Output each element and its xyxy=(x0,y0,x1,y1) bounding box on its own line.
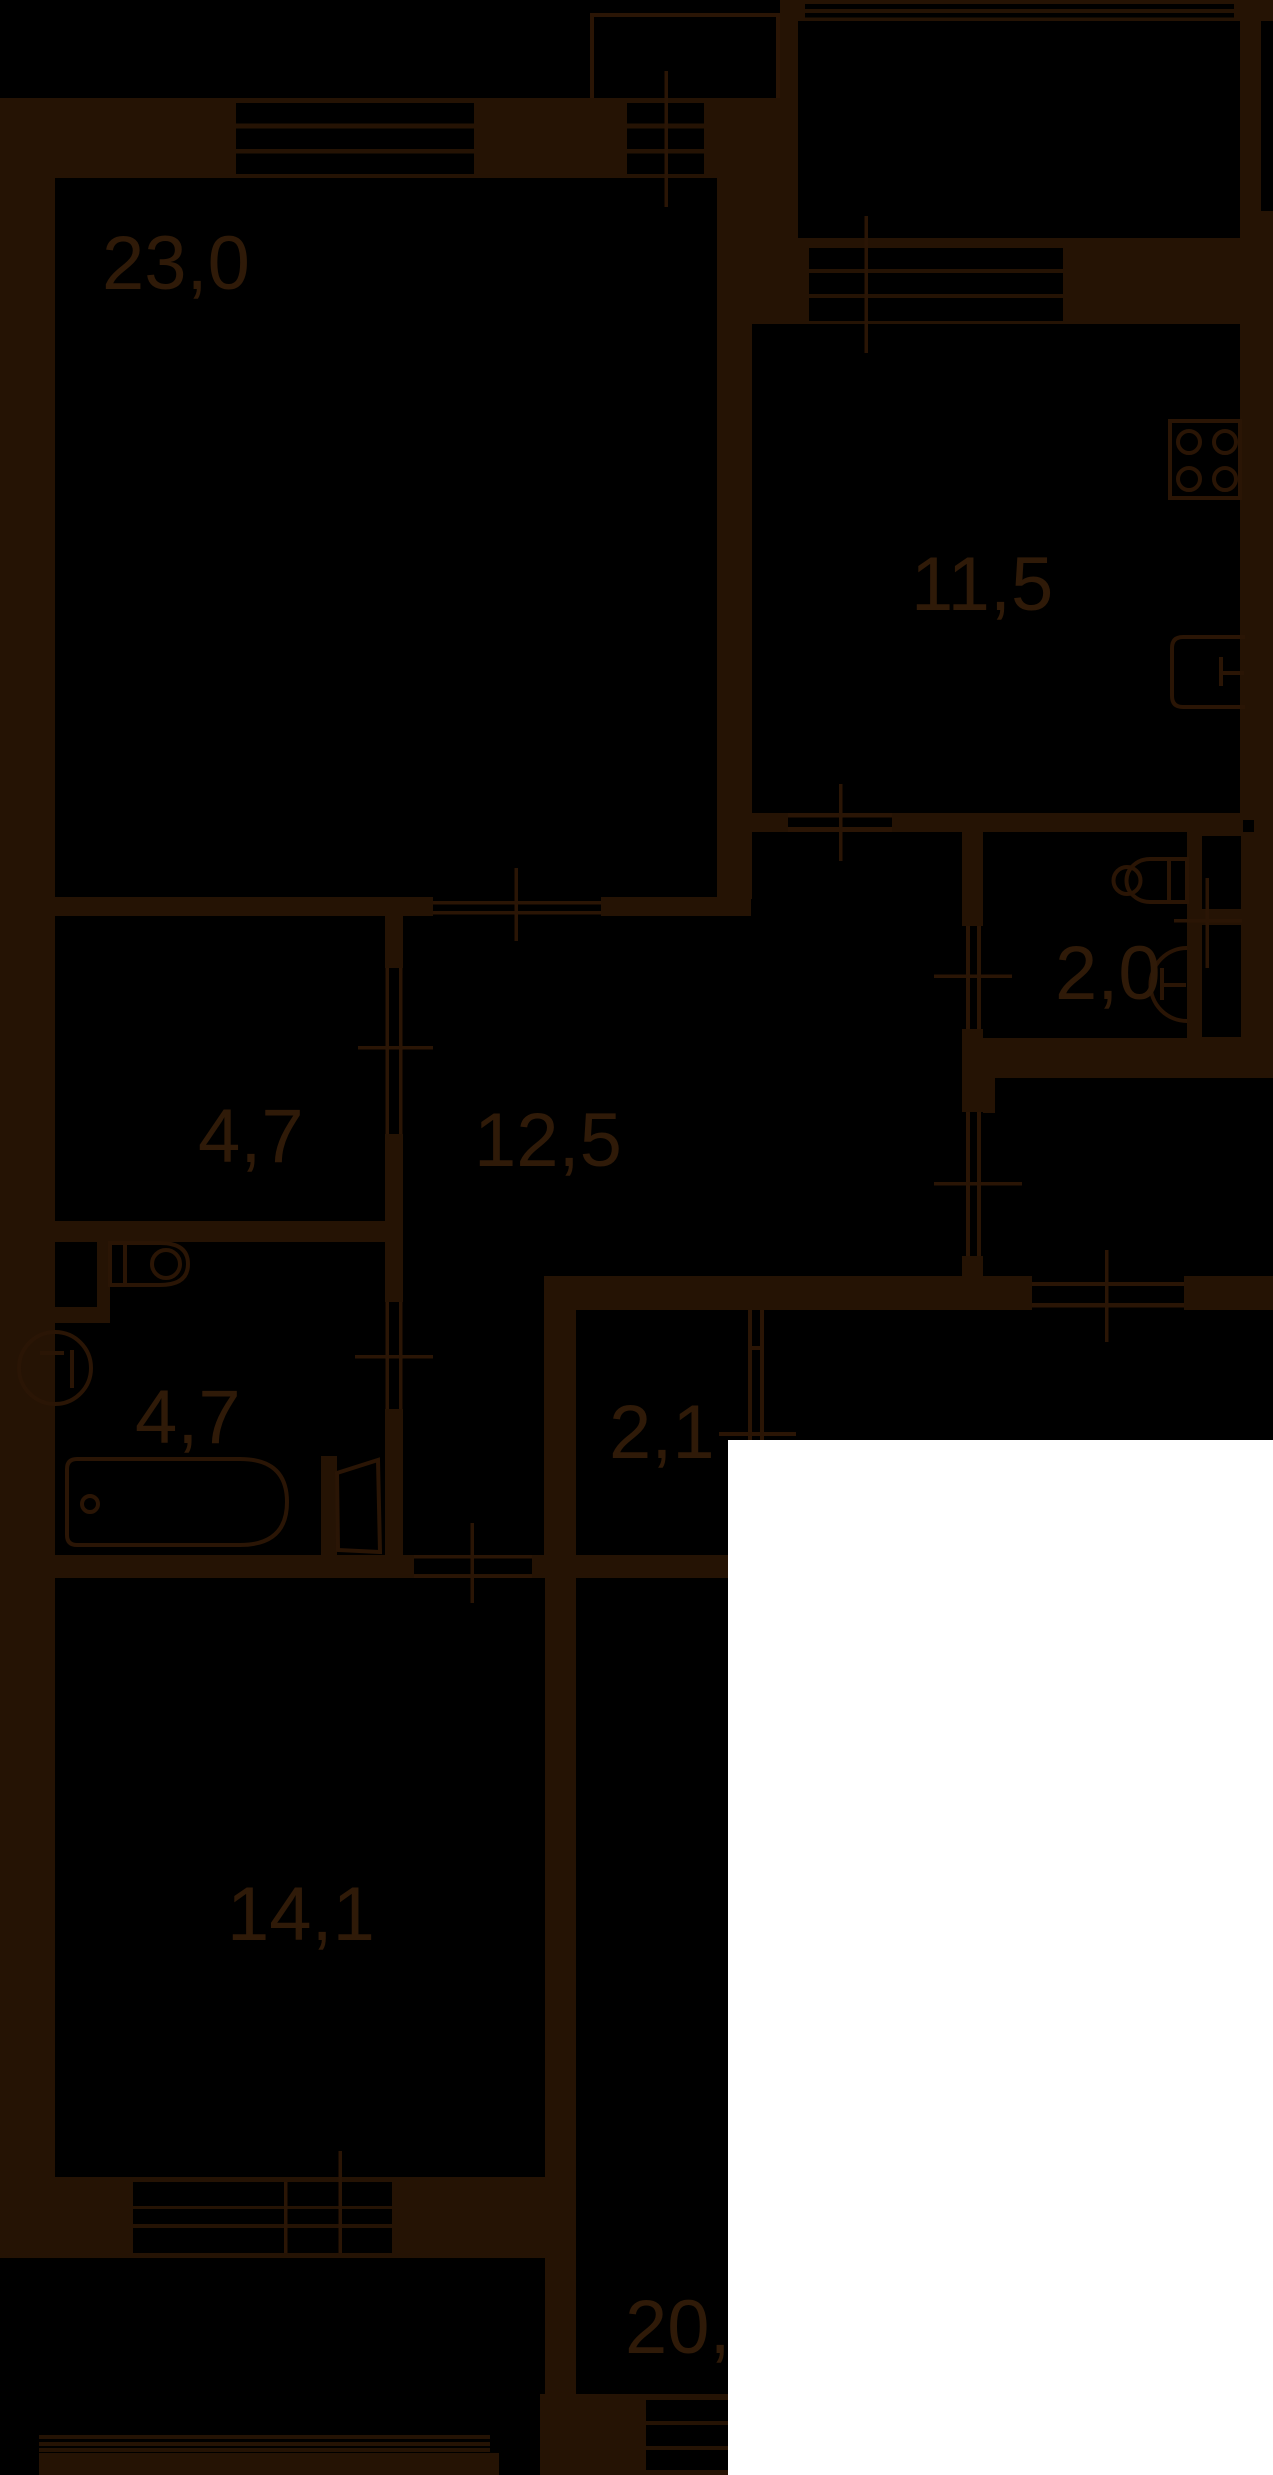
svg-text:4,7: 4,7 xyxy=(198,1094,304,1179)
svg-text:12,5: 12,5 xyxy=(474,1098,622,1183)
svg-text:2,0: 2,0 xyxy=(1055,931,1161,1016)
svg-text:4,7: 4,7 xyxy=(135,1375,241,1460)
svg-text:2,1: 2,1 xyxy=(609,1390,715,1475)
svg-text:11,5: 11,5 xyxy=(911,542,1053,627)
svg-text:14,1: 14,1 xyxy=(227,1872,375,1957)
svg-text:23,0: 23,0 xyxy=(102,221,250,306)
